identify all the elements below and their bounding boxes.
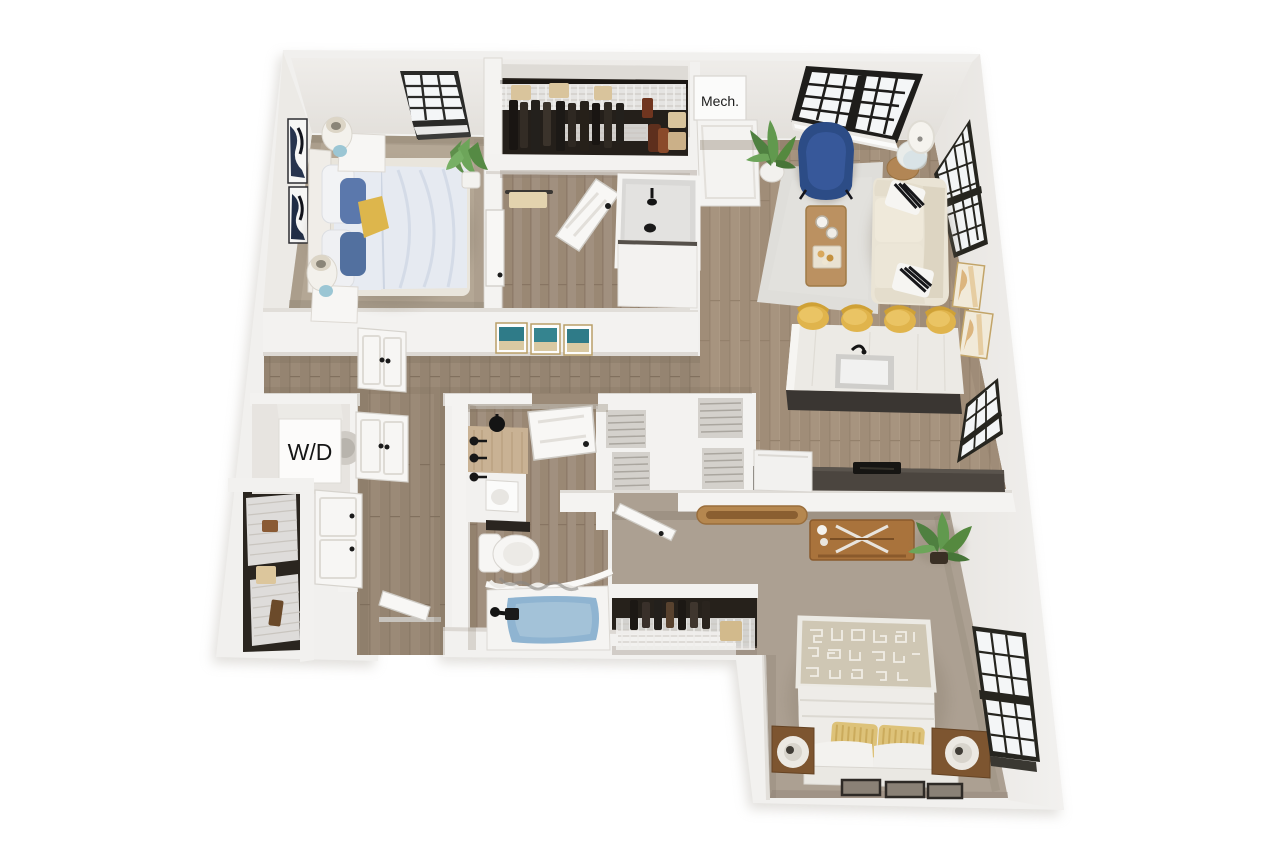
svg-text:W/D: W/D	[288, 439, 333, 465]
svg-text:Mech.: Mech.	[701, 93, 739, 109]
